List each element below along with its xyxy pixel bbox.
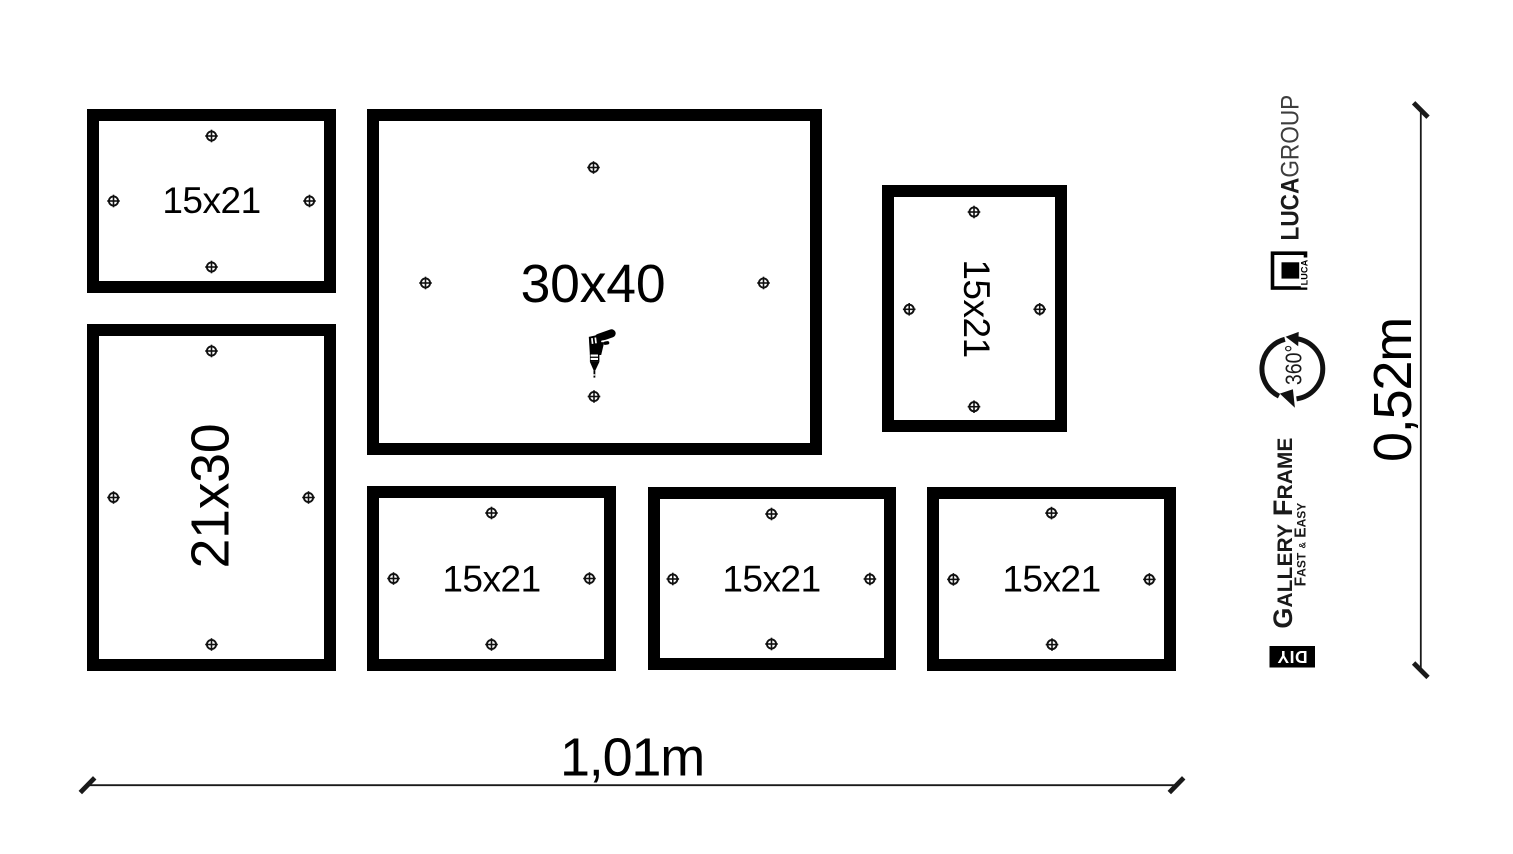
svg-text:LUCAGROUP: LUCAGROUP <box>1276 95 1304 241</box>
svg-text:1,01m: 1,01m <box>560 728 704 788</box>
svg-text:360°: 360° <box>1281 345 1307 385</box>
svg-text:DIY: DIY <box>1277 647 1308 667</box>
svg-text:15x21: 15x21 <box>1002 559 1100 600</box>
svg-text:0,52m: 0,52m <box>1363 318 1423 462</box>
svg-text:30x40: 30x40 <box>521 255 666 314</box>
svg-text:15x21: 15x21 <box>442 559 540 600</box>
svg-text:15x21: 15x21 <box>162 180 260 221</box>
svg-text:15x21: 15x21 <box>722 559 820 600</box>
svg-text:15x21: 15x21 <box>956 259 997 357</box>
svg-text:21x30: 21x30 <box>182 424 241 569</box>
svg-text:LUCA: LUCA <box>1299 259 1309 285</box>
